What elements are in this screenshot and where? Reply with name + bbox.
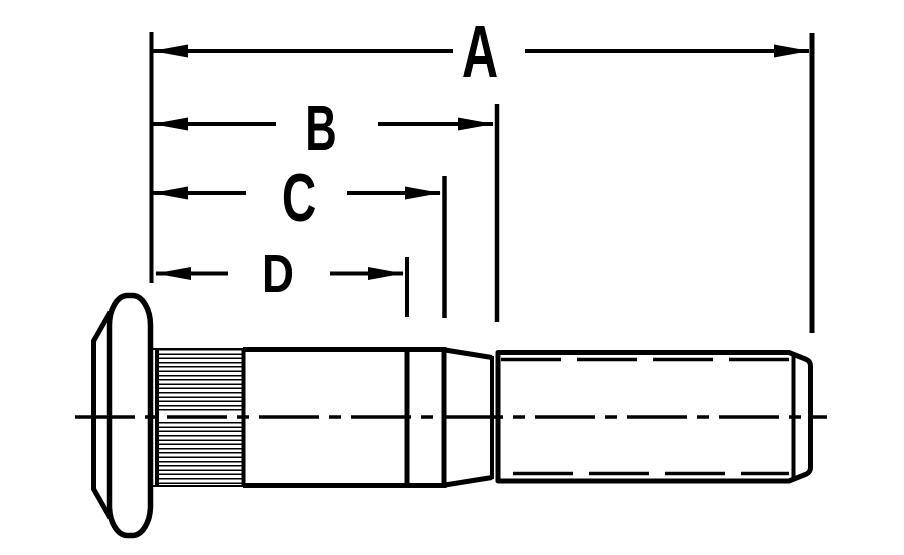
arrowhead-left-icon xyxy=(152,187,188,200)
taper-bottom-edge xyxy=(445,478,492,486)
dimension-a-label: A xyxy=(462,12,498,94)
dimension-d: D xyxy=(155,244,404,304)
dimension-b-label: B xyxy=(305,92,336,165)
dimension-a: A xyxy=(152,12,810,94)
arrowhead-right-icon xyxy=(405,187,441,200)
arrowhead-right-icon xyxy=(368,267,404,280)
arrowhead-left-icon xyxy=(152,118,188,131)
technical-drawing: A B C D xyxy=(0,0,904,555)
dimension-d-label: D xyxy=(262,244,294,304)
arrowhead-left-icon xyxy=(152,45,188,58)
arrowhead-right-icon xyxy=(774,45,810,58)
arrowhead-left-icon xyxy=(155,267,191,280)
dimension-b: B xyxy=(152,92,494,165)
dimension-c: C xyxy=(152,161,441,236)
dimension-c-label: C xyxy=(282,161,316,236)
drawing-svg: A B C D xyxy=(0,0,904,555)
taper-top-edge xyxy=(445,350,492,358)
arrowhead-right-icon xyxy=(458,118,494,131)
